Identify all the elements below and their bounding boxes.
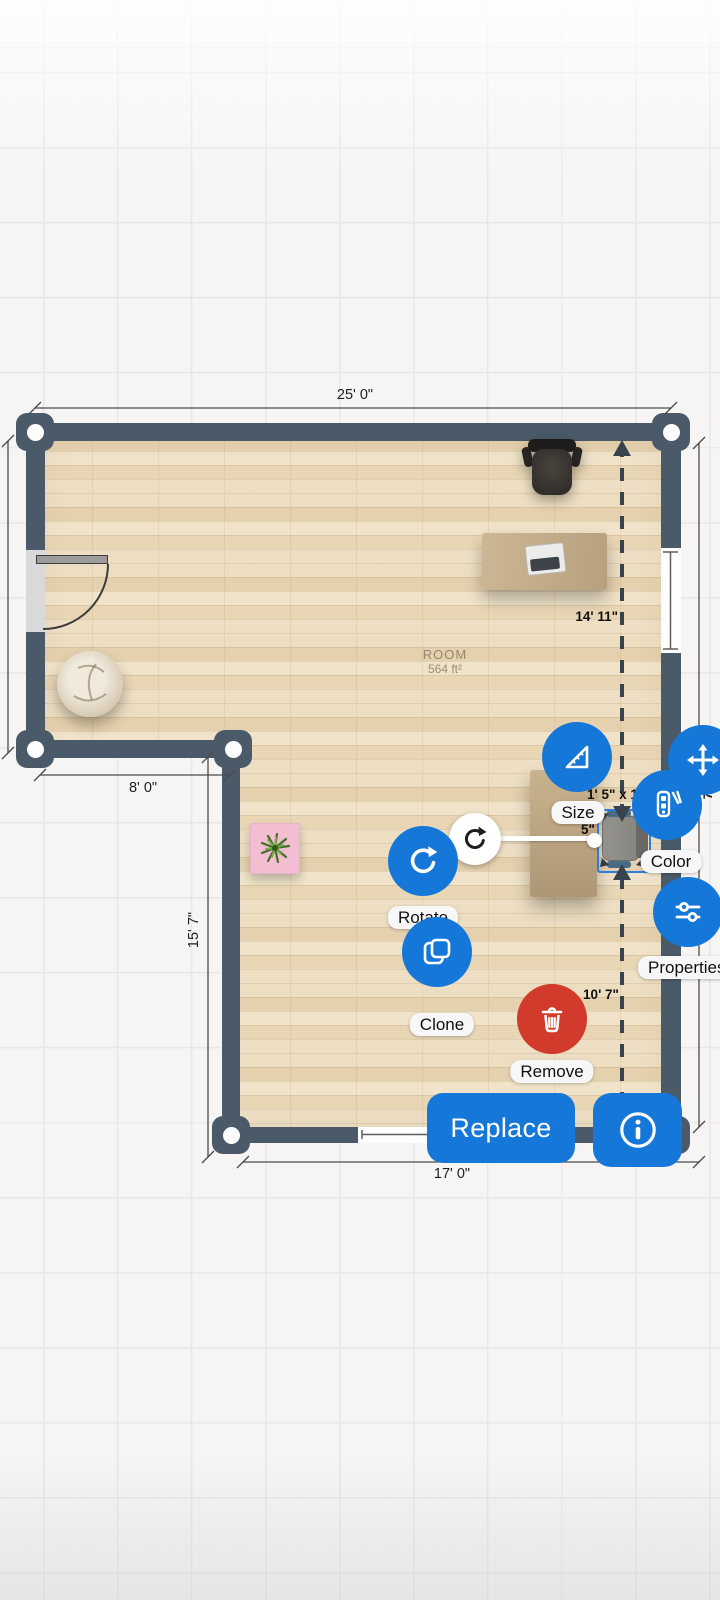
color-label-pill: Color (641, 850, 702, 873)
paint-swatch-pen-icon (649, 787, 685, 823)
room-area: 564 ft² (395, 662, 495, 676)
rotate-arrow-small-icon (460, 824, 490, 854)
rotate-button[interactable] (388, 826, 458, 896)
sliders-icon (670, 894, 706, 930)
laptop-keyboard (530, 557, 560, 572)
remove-button[interactable] (517, 984, 587, 1054)
color-button[interactable] (632, 770, 702, 840)
chair-seat (532, 449, 572, 495)
info-button[interactable] (593, 1093, 682, 1167)
dim-selected-object-size: 1' 5" x 1 (587, 787, 638, 802)
clone-label-pill: Clone (410, 1013, 474, 1036)
clone-button[interactable] (402, 917, 472, 987)
room-name: ROOM (395, 647, 495, 662)
set-square-ruler-icon (559, 739, 595, 775)
corner-hole (663, 424, 680, 441)
copy-pages-icon (419, 934, 455, 970)
desk-top[interactable] (482, 533, 607, 590)
dim-top-width: 25' 0" (280, 387, 430, 403)
dim-upper-left-width: 8' 0" (103, 780, 183, 796)
wall-left-step[interactable] (26, 740, 240, 758)
remove-label-pill: Remove (510, 1060, 593, 1083)
pink-table[interactable] (250, 823, 300, 874)
room-label: ROOM 564 ft² (395, 647, 495, 676)
dim-object-to-top-wall: 14' 11" (538, 609, 618, 624)
corner-hole (225, 741, 242, 758)
corner-post-top-right[interactable] (652, 413, 690, 451)
corner-hole (223, 1127, 240, 1144)
dim-lower-left-height: 15' 7" (186, 895, 202, 965)
corner-post-top-left[interactable] (16, 413, 54, 451)
rotate-arrow-icon (404, 842, 442, 880)
office-chair[interactable] (523, 439, 581, 501)
corner-post-bottom-left[interactable] (212, 1116, 250, 1154)
size-button[interactable] (542, 722, 612, 792)
size-handle-dot[interactable] (587, 833, 602, 848)
wall-top[interactable] (26, 423, 681, 441)
floor-plan-editor-canvas: { "room": { "name": "ROOM", "area": "564… (0, 0, 720, 1600)
corner-post-mid-left[interactable] (16, 730, 54, 768)
corner-hole (27, 741, 44, 758)
info-circle-icon (615, 1107, 661, 1153)
wall-left-lower[interactable] (222, 740, 240, 1143)
properties-button[interactable] (653, 877, 720, 947)
door-leaf[interactable] (36, 555, 108, 564)
pouf-armchair[interactable] (57, 651, 123, 717)
properties-label-pill: Properties (638, 956, 720, 979)
window-right[interactable] (661, 548, 681, 653)
trash-can-icon (534, 1001, 570, 1037)
corner-hole (27, 424, 44, 441)
replace-button[interactable]: Replace (427, 1093, 575, 1163)
rotate-handle-line (500, 836, 590, 841)
size-label-pill: Size (551, 801, 604, 824)
laptop (525, 542, 567, 576)
corner-post-inner[interactable] (214, 730, 252, 768)
four-way-arrows-icon (685, 742, 720, 778)
dim-bottom-width: 17' 0" (412, 1166, 492, 1182)
